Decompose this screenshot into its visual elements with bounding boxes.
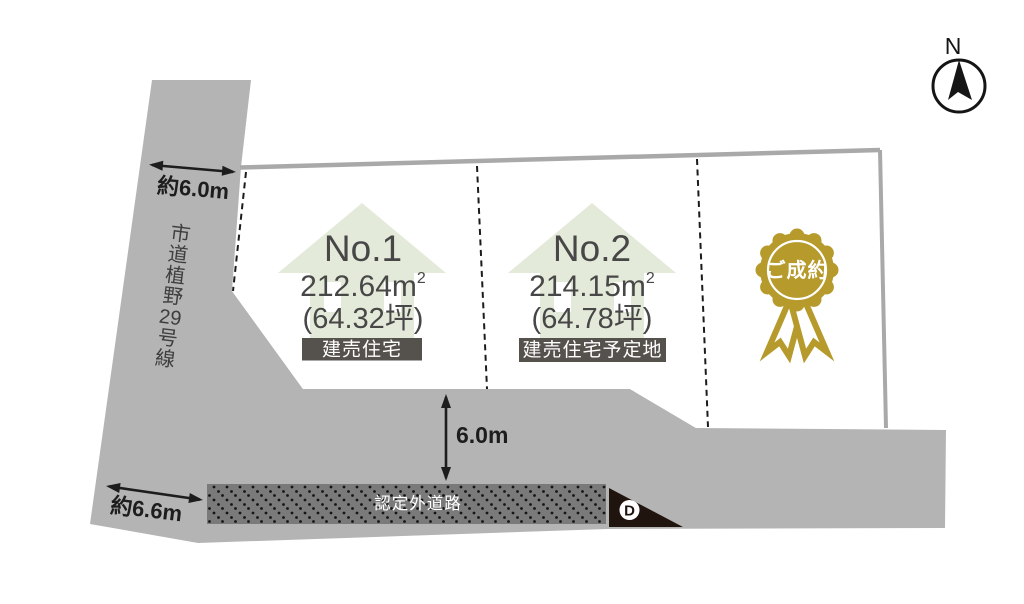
lot1-area-sup: 2 [417,270,426,287]
compass-icon: N [933,33,985,112]
road-name-char: 線 [154,346,177,371]
lot-layout-diagram: No.1 212.64m2 (64.32坪) 建売住宅 No.2 214.15m… [0,0,1024,604]
lot2-area-tsubo: (64.78坪) [532,302,653,335]
site-plan-svg: No.1 212.64m2 (64.32坪) 建売住宅 No.2 214.15m… [0,0,1024,604]
sold-status-label: ご成約 [766,258,829,282]
lot1-area-value: 212.64 [300,270,392,303]
dimension-upper-road-width: 約6.0m [149,161,236,204]
compass-north-label: N [945,33,962,59]
lot1-type-badge-label: 建売住宅 [322,339,402,361]
corner-marker-label: D [624,503,635,520]
lot2-area-m2: 214.15m2 [529,270,655,303]
lot2-number: No.2 [553,228,631,269]
lot1-area-m2: 212.64m2 [300,270,426,303]
lot1-area-unit: m [392,270,417,303]
lot2-area-value: 214.15 [529,270,621,303]
lot2-area-unit: m [621,270,646,303]
lot2-area-sup: 2 [646,270,655,287]
lot1-area-tsubo: (64.32坪) [303,302,424,335]
unofficial-road-strip: 認定外道路 [207,484,606,524]
dimension-front-road-label: 6.0m [456,422,508,448]
lot1-number: No.1 [324,228,402,269]
lot2-type-badge-label: 建売住宅予定地 [522,339,662,361]
unofficial-road-label: 認定外道路 [374,494,462,513]
